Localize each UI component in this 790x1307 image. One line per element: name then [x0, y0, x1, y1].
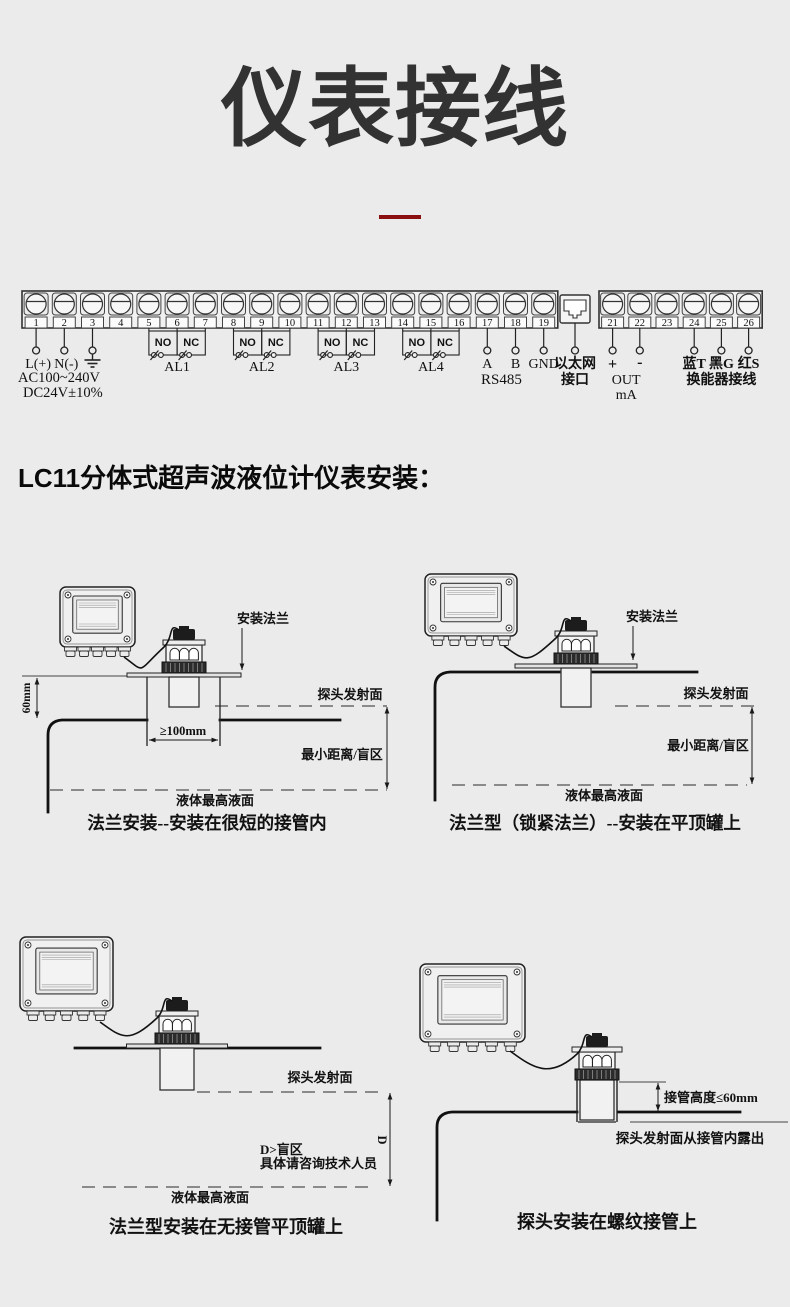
- arrowhead-icon: [656, 1105, 661, 1112]
- arrowhead-icon: [388, 1093, 393, 1100]
- arrowhead-icon: [35, 678, 40, 685]
- relay-group: NONCAL4: [403, 328, 459, 375]
- cable-gland: [105, 647, 117, 651]
- ethernet-label-line2: 接口: [561, 371, 589, 388]
- arrowhead-icon: [385, 707, 390, 714]
- probe-cable-cap: [565, 620, 587, 631]
- terminal-number: 21: [607, 318, 618, 329]
- section-heading: LC11分体式超声波液位计仪表安装：: [18, 458, 444, 495]
- wire-end-circle: [745, 347, 752, 354]
- cable-gland: [448, 1042, 460, 1046]
- terminal-screw-icon: [534, 294, 554, 314]
- power-supply-line1: AC100~240V: [18, 370, 100, 386]
- transducer-black-label: 黑G: [709, 356, 734, 372]
- terminal-screw-icon: [26, 294, 46, 314]
- terminal-number: 19: [538, 318, 549, 329]
- crown-slot: [572, 639, 581, 651]
- out-plus-label: +: [608, 356, 617, 373]
- page: 仪表接线 12345678910111213141516171819212223…: [0, 0, 790, 1307]
- terminal-number: 11: [313, 318, 323, 329]
- wire-end-circle: [484, 347, 491, 354]
- terminal-screw-icon: [167, 294, 187, 314]
- controller-box: [20, 937, 113, 1021]
- cable-gland: [433, 640, 442, 646]
- terminal-number: 25: [716, 318, 727, 329]
- relay-name: AL1: [164, 360, 190, 375]
- terminal-screw-icon: [421, 294, 441, 314]
- diagram-caption: 探头安装在螺纹接管上: [517, 1211, 697, 1232]
- probe-cylinder: [561, 668, 591, 707]
- display-screen: [445, 587, 498, 617]
- arrowhead-icon: [750, 778, 755, 785]
- corner-screw-dot: [427, 971, 429, 973]
- corner-screw-dot: [126, 638, 128, 640]
- relay-group: NONCAL1: [149, 328, 205, 375]
- cable-gland: [504, 1042, 516, 1046]
- display-screen: [40, 952, 93, 990]
- arrowhead-icon: [212, 738, 219, 743]
- probe-lid: [156, 1011, 198, 1016]
- terminal-number: 4: [118, 318, 124, 329]
- corner-screw-dot: [508, 581, 510, 583]
- cable-gland: [120, 651, 129, 657]
- cable-gland: [449, 1046, 458, 1052]
- corner-screw-dot: [126, 594, 128, 596]
- relay-no-label: NO: [239, 337, 256, 349]
- relay-name: AL2: [249, 360, 275, 375]
- rs485-label: RS485: [481, 372, 522, 388]
- probe-cylinder: [160, 1048, 194, 1090]
- terminal-screw-icon: [111, 294, 131, 314]
- out-label: OUT: [612, 373, 641, 388]
- terminal-number: 10: [285, 318, 296, 329]
- blind-zone-line2: 具体请咨询技术人员: [260, 1156, 377, 1171]
- cable-gland: [450, 640, 459, 646]
- cable-gland: [77, 1011, 89, 1015]
- cable-gland: [95, 1015, 104, 1021]
- terminal-screw-icon: [477, 294, 497, 314]
- emit-face-label: 探头发射面: [683, 686, 748, 701]
- terminal-number: 9: [259, 318, 264, 329]
- crown-slot: [173, 1019, 182, 1031]
- wire-end-circle: [691, 347, 698, 354]
- cable-gland: [94, 1011, 106, 1015]
- arrowhead-icon: [388, 1180, 393, 1187]
- cable-gland: [500, 640, 509, 646]
- terminal-screw-icon: [83, 294, 103, 314]
- probe-cap-neck: [592, 1033, 602, 1037]
- transducer-red-label: 红S: [738, 355, 760, 372]
- cable-gland: [78, 647, 90, 651]
- probe-cap-neck: [571, 617, 581, 621]
- relay-name: AL4: [418, 360, 444, 375]
- emit-face-label: 探头发射面: [287, 1070, 352, 1085]
- dim-100mm-label: ≥100mm: [160, 724, 207, 738]
- display-screen: [442, 980, 503, 1020]
- earth-ground-icon: [85, 354, 101, 367]
- liquid-max-label: 液体最高液面: [565, 788, 643, 803]
- cable-gland: [482, 636, 494, 640]
- tank-wall-left: [437, 1112, 577, 1220]
- min-dist-label: 最小距离/盲区: [667, 738, 749, 753]
- dim-60mm-label: 60mm: [21, 682, 33, 713]
- cable-gland: [432, 636, 444, 640]
- contact-point: [412, 353, 417, 358]
- probe-cap-neck: [172, 997, 182, 1001]
- contact-point: [328, 353, 333, 358]
- corner-screw-dot: [104, 1002, 106, 1004]
- terminal-number: 1: [33, 318, 38, 329]
- terminal-screw-icon: [630, 294, 650, 314]
- contact-point: [271, 353, 276, 358]
- cable-gland: [485, 1042, 497, 1046]
- cable-gland: [61, 1011, 73, 1015]
- wire-end-circle: [572, 347, 579, 354]
- terminal-number: 16: [454, 318, 465, 329]
- arrowhead-icon: [35, 712, 40, 719]
- relay-no-label: NO: [155, 337, 172, 349]
- cable-gland: [80, 651, 89, 657]
- corner-screw-dot: [27, 1002, 29, 1004]
- display-screen: [77, 600, 119, 629]
- terminal-screw-icon: [449, 294, 469, 314]
- cable-gland: [429, 1042, 441, 1046]
- relay-name: AL3: [333, 360, 359, 375]
- probe-cylinder: [169, 677, 199, 707]
- contact-point: [159, 353, 164, 358]
- cable-gland: [79, 1015, 88, 1021]
- min-dist-label: 最小距离/盲区: [301, 747, 383, 762]
- probe-cable-cap: [173, 629, 195, 640]
- probe-cap-neck: [179, 626, 189, 630]
- install-diagram-locking-flange-flat-roof: 安装法兰探头发射面最小距离/盲区液体最高液面法兰型（锁紧法兰）--安装在平顶罐上: [400, 560, 790, 860]
- corner-screw-dot: [104, 944, 106, 946]
- contact-point: [356, 353, 361, 358]
- corner-screw-dot: [432, 627, 434, 629]
- corner-screw-dot: [516, 971, 518, 973]
- corner-screw-dot: [516, 1033, 518, 1035]
- liquid-max-label: 液体最高液面: [171, 1190, 249, 1205]
- terminal-number: 22: [635, 318, 646, 329]
- probe-cylinder: [580, 1080, 614, 1120]
- terminal-screw-icon: [54, 294, 74, 314]
- cable-gland: [107, 651, 116, 657]
- relay-no-label: NO: [324, 337, 341, 349]
- arrowhead-icon: [656, 1083, 661, 1090]
- terminal-number: 8: [231, 318, 236, 329]
- liquid-max-label: 液体最高液面: [176, 793, 254, 808]
- wire-end-circle: [89, 347, 96, 354]
- probe-lid: [555, 631, 597, 636]
- contact-point: [441, 353, 446, 358]
- crown-slot: [562, 639, 571, 651]
- terminal-number: 5: [146, 318, 151, 329]
- ethernet-port-icon: [560, 295, 590, 323]
- cable-gland: [483, 640, 492, 646]
- terminal-screw-icon: [252, 294, 272, 314]
- relay-group: NONCAL3: [318, 328, 374, 375]
- cable-gland: [430, 1046, 439, 1052]
- corner-screw-dot: [427, 1033, 429, 1035]
- terminal-screw-icon: [336, 294, 356, 314]
- terminal-screw-icon: [308, 294, 328, 314]
- wire-end-circle: [718, 347, 725, 354]
- crown-slot: [163, 1019, 172, 1031]
- contact-point: [243, 353, 248, 358]
- controller-box: [425, 574, 517, 646]
- cable-gland: [65, 647, 77, 651]
- terminal-screw-icon: [739, 294, 759, 314]
- terminal-number: 15: [426, 318, 437, 329]
- relay-group: NONCAL2: [234, 328, 290, 375]
- relay-nc-label: NC: [352, 337, 368, 349]
- transducer-blue-label: 蓝T: [683, 355, 707, 372]
- page-title: 仪表接线: [0, 58, 790, 161]
- install-diagram-flange-short-nozzle: 安装法兰60mm≥100mm探头发射面最小距离/盲区液体最高液面法兰安装--安装…: [10, 560, 395, 860]
- arrowhead-icon: [750, 707, 755, 714]
- emit-expose-label: 探头发射面从接管内露出: [616, 1130, 765, 1146]
- cable-gland: [92, 647, 104, 651]
- terminal-number: 12: [341, 318, 352, 329]
- cable-gland: [498, 636, 510, 640]
- terminal-screw-icon: [684, 294, 704, 314]
- terminal-wiring-diagram: 1234567891011121314151617181921222324252…: [0, 285, 790, 415]
- terminal-number: 6: [174, 318, 179, 329]
- crown-slot: [180, 648, 189, 660]
- terminal-block: 212223242526: [599, 291, 762, 329]
- contact-point: [187, 353, 192, 358]
- install-diagram-flange-no-nozzle: 探头发射面DD>盲区具体请咨询技术人员液体最高液面法兰型安装在无接管平顶罐上: [10, 930, 400, 1245]
- corner-screw-dot: [67, 594, 69, 596]
- tank-wall-left: [48, 720, 147, 812]
- crown-slot: [189, 648, 198, 660]
- crown-slot: [593, 1055, 602, 1067]
- diagram-caption: 法兰型（锁紧法兰）--安装在平顶罐上: [449, 813, 741, 833]
- terminal-screw-icon: [280, 294, 300, 314]
- wire-end-circle: [609, 347, 616, 354]
- arrowhead-icon: [240, 664, 245, 671]
- terminal-screw-icon: [603, 294, 623, 314]
- relay-nc-label: NC: [268, 337, 284, 349]
- cable-gland: [29, 1015, 38, 1021]
- terminal-screw-icon: [139, 294, 159, 314]
- relay-no-label: NO: [409, 337, 426, 349]
- terminal-screw-icon: [657, 294, 677, 314]
- terminal-number: 7: [203, 318, 208, 329]
- crown-slot: [583, 1055, 592, 1067]
- terminal-screw-icon: [365, 294, 385, 314]
- cable-gland: [119, 647, 131, 651]
- controller-box: [60, 587, 135, 657]
- pipe-height-label: 接管高度≤60mm: [664, 1090, 758, 1105]
- ultrasonic-probe: [127, 997, 228, 1090]
- cable-gland: [487, 1046, 496, 1052]
- terminal-number: 24: [689, 318, 700, 329]
- tank-wall-left: [435, 672, 559, 800]
- cable-gland: [465, 636, 477, 640]
- cable-gland: [93, 651, 102, 657]
- relay-nc-label: NC: [437, 337, 453, 349]
- wire-end-circle: [636, 347, 643, 354]
- controller-box: [420, 964, 525, 1052]
- terminal-number: 18: [510, 318, 521, 329]
- crown-slot: [602, 1055, 611, 1067]
- terminal-block: 12345678910111213141516171819: [22, 291, 558, 329]
- terminal-number: 3: [90, 318, 95, 329]
- corner-screw-dot: [27, 944, 29, 946]
- arrowhead-icon: [385, 783, 390, 790]
- wire-end-circle: [33, 347, 40, 354]
- terminal-number: 2: [62, 318, 67, 329]
- red-divider: [379, 215, 421, 219]
- transducer-label: 换能器接线: [686, 371, 756, 388]
- install-diagram-threaded-nozzle: 接管高度≤60mm探头发射面从接管内露出探头安装在螺纹接管上: [400, 930, 790, 1245]
- emit-face-label: 探头发射面: [317, 687, 382, 702]
- terminal-number: 14: [397, 318, 408, 329]
- out-minus-label: -: [637, 354, 642, 371]
- terminal-screw-icon: [711, 294, 731, 314]
- rs485-a-label: A: [482, 357, 493, 372]
- cable-gland: [467, 640, 476, 646]
- power-supply-line2: DC24V±10%: [23, 385, 103, 401]
- ultrasonic-probe: [572, 1033, 622, 1120]
- cable-gland: [468, 1046, 477, 1052]
- flange-label: 安装法兰: [626, 609, 678, 624]
- wire-end-circle: [540, 347, 547, 354]
- arrowhead-icon: [149, 738, 156, 743]
- terminal-screw-icon: [224, 294, 244, 314]
- wire-end-circle: [512, 347, 519, 354]
- corner-screw-dot: [508, 627, 510, 629]
- diagram-caption: 法兰型安装在无接管平顶罐上: [109, 1216, 343, 1237]
- dim-d-label: D: [375, 1135, 389, 1144]
- cable-gland: [27, 1011, 39, 1015]
- probe-cable-cap: [166, 1000, 188, 1011]
- terminal-number: 13: [369, 318, 380, 329]
- arrowhead-icon: [631, 654, 636, 661]
- crown-slot: [182, 1019, 191, 1031]
- crown-slot: [581, 639, 590, 651]
- ultrasonic-probe: [515, 617, 637, 707]
- cable-gland: [45, 1015, 54, 1021]
- terminal-number: 26: [743, 318, 754, 329]
- rs485-b-label: B: [511, 357, 520, 372]
- ethernet-label-line1: 以太网: [554, 355, 596, 372]
- terminal-screw-icon: [393, 294, 413, 314]
- flange-label: 安装法兰: [237, 611, 289, 626]
- terminal-number: 23: [662, 318, 673, 329]
- corner-screw-dot: [67, 638, 69, 640]
- crown-slot: [170, 648, 179, 660]
- terminal-screw-icon: [506, 294, 526, 314]
- cable-gland: [44, 1011, 56, 1015]
- cable-gland: [448, 636, 460, 640]
- cable-gland: [66, 651, 75, 657]
- terminal-number: 17: [482, 318, 493, 329]
- ma-label: mA: [616, 388, 638, 403]
- relay-nc-label: NC: [183, 337, 199, 349]
- diagram-caption: 法兰安装--安装在很短的接管内: [87, 813, 326, 833]
- terminal-screw-icon: [195, 294, 215, 314]
- corner-screw-dot: [432, 581, 434, 583]
- probe-cable-cap: [586, 1036, 608, 1047]
- probe-lid: [163, 640, 205, 645]
- wire-end-circle: [61, 347, 68, 354]
- cable-gland: [467, 1042, 479, 1046]
- blind-zone-line1: D>盲区: [260, 1142, 303, 1157]
- cable-gland: [62, 1015, 71, 1021]
